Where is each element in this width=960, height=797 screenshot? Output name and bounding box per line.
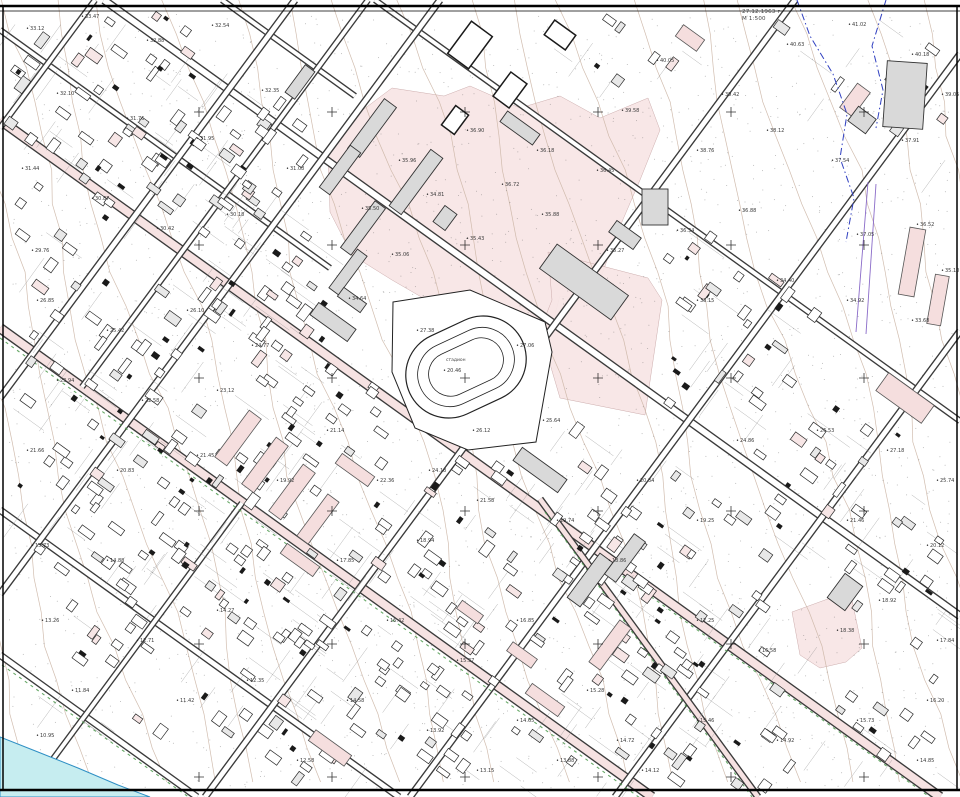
map-dot bbox=[73, 156, 74, 157]
parcel-fence bbox=[558, 763, 568, 776]
map-dot bbox=[624, 160, 625, 161]
map-dot bbox=[556, 195, 557, 196]
map-dot bbox=[112, 712, 113, 713]
house bbox=[511, 727, 520, 735]
map-dot bbox=[224, 315, 225, 316]
map-dot bbox=[607, 63, 608, 64]
map-dot bbox=[835, 401, 836, 402]
map-dot bbox=[770, 520, 771, 521]
map-dot bbox=[948, 701, 949, 702]
apartment-row bbox=[335, 453, 374, 486]
elevation-label: 14.58 bbox=[350, 698, 364, 704]
map-dot bbox=[938, 137, 939, 138]
map-dot bbox=[631, 349, 632, 350]
elevation-point bbox=[609, 560, 610, 561]
map-dot bbox=[138, 31, 139, 32]
map-dot bbox=[383, 501, 384, 502]
map-dot bbox=[720, 222, 721, 223]
map-dot bbox=[756, 81, 757, 82]
map-dot bbox=[520, 114, 521, 115]
map-dot bbox=[468, 622, 469, 623]
house bbox=[78, 131, 94, 145]
map-dot bbox=[935, 104, 936, 105]
map-dot bbox=[755, 776, 756, 777]
map-dot bbox=[899, 32, 900, 33]
map-dot bbox=[639, 72, 640, 73]
map-dot bbox=[214, 65, 215, 66]
map-dot bbox=[40, 558, 41, 559]
map-dot bbox=[824, 744, 825, 745]
map-dot bbox=[782, 389, 783, 390]
map-dot bbox=[77, 616, 78, 617]
map-dot bbox=[72, 567, 73, 568]
elevation-label: 18.92 bbox=[882, 598, 896, 604]
map-dot bbox=[454, 146, 455, 147]
house bbox=[765, 505, 781, 520]
map-dot bbox=[903, 690, 904, 691]
map-dot bbox=[884, 128, 885, 129]
map-dot bbox=[26, 546, 27, 547]
parcel-fence bbox=[561, 693, 582, 708]
elevation-point bbox=[32, 250, 33, 251]
map-dot bbox=[728, 27, 729, 28]
map-dot bbox=[569, 198, 570, 199]
map-dot bbox=[890, 17, 891, 18]
map-dot bbox=[588, 609, 589, 610]
shed bbox=[264, 579, 271, 586]
elevation-label: 35.43 bbox=[470, 236, 484, 242]
shed bbox=[398, 734, 406, 741]
map-dot bbox=[451, 659, 452, 660]
survey-annotation-line1: 27.12.1963 г. bbox=[742, 9, 842, 16]
map-dot bbox=[250, 42, 251, 43]
elevation-label: 22.58 bbox=[145, 398, 159, 404]
map-dot bbox=[96, 335, 97, 336]
map-dot bbox=[461, 144, 462, 145]
map-dot bbox=[92, 146, 93, 147]
map-dot bbox=[539, 728, 540, 729]
map-dot bbox=[233, 748, 234, 749]
parcel-fence bbox=[554, 49, 572, 62]
map-dot bbox=[862, 687, 863, 688]
map-dot bbox=[584, 444, 585, 445]
shed bbox=[112, 84, 120, 91]
map-dot bbox=[307, 573, 308, 574]
house bbox=[257, 546, 271, 560]
map-dot bbox=[698, 550, 699, 551]
map-dot bbox=[923, 522, 924, 523]
map-dot bbox=[424, 723, 425, 724]
parcel-fence bbox=[327, 668, 343, 680]
map-dot bbox=[907, 616, 908, 617]
map-dot bbox=[808, 355, 809, 356]
map-dot bbox=[907, 458, 908, 459]
map-dot bbox=[199, 50, 200, 51]
map-dot bbox=[220, 362, 221, 363]
map-dot bbox=[412, 294, 413, 295]
map-dot bbox=[195, 243, 196, 244]
map-dot bbox=[148, 446, 149, 447]
map-dot bbox=[334, 403, 335, 404]
map-dot bbox=[580, 116, 581, 117]
map-dot bbox=[50, 439, 51, 440]
map-dot bbox=[812, 735, 813, 736]
map-dot bbox=[841, 311, 842, 312]
map-dot bbox=[361, 66, 362, 67]
house bbox=[361, 625, 372, 636]
elevation-label: 14.12 bbox=[645, 768, 659, 774]
map-dot bbox=[594, 718, 595, 719]
map-dot bbox=[643, 406, 644, 407]
map-dot bbox=[481, 751, 482, 752]
map-dot bbox=[204, 675, 205, 676]
map-dot bbox=[557, 641, 558, 642]
map-dot bbox=[671, 42, 672, 43]
map-dot bbox=[932, 356, 933, 357]
map-dot bbox=[621, 457, 622, 458]
map-dot bbox=[381, 369, 382, 370]
map-dot bbox=[727, 741, 728, 742]
map-dot bbox=[33, 724, 34, 725]
map-dot bbox=[581, 243, 582, 244]
map-dot bbox=[659, 452, 660, 453]
map-dot bbox=[144, 571, 145, 572]
map-dot bbox=[418, 477, 419, 478]
elevation-point bbox=[429, 470, 430, 471]
map-dot bbox=[789, 329, 790, 330]
map-dot bbox=[261, 137, 262, 138]
map-dot bbox=[864, 397, 865, 398]
map-dot bbox=[355, 676, 356, 677]
house bbox=[370, 407, 381, 417]
map-dot bbox=[722, 733, 723, 734]
map-dot bbox=[101, 543, 102, 544]
map-dot bbox=[319, 655, 320, 656]
map-dot bbox=[896, 652, 897, 653]
map-dot bbox=[773, 713, 774, 714]
map-dot bbox=[718, 590, 719, 591]
map-dot bbox=[233, 103, 234, 104]
map-dot bbox=[638, 225, 639, 226]
map-dot bbox=[712, 771, 713, 772]
elevation-label: 40.18 bbox=[915, 52, 929, 58]
elevation-label: 17.85 bbox=[340, 558, 354, 564]
map-dot bbox=[591, 114, 592, 115]
elevation-label: 30.18 bbox=[230, 212, 244, 218]
map-dot bbox=[933, 490, 934, 491]
map-dot bbox=[891, 20, 892, 21]
map-dot bbox=[858, 651, 859, 652]
map-dot bbox=[336, 473, 337, 474]
map-dot bbox=[723, 258, 724, 259]
map-dot bbox=[287, 584, 288, 585]
map-dot bbox=[775, 411, 776, 412]
map-dot bbox=[202, 160, 203, 161]
house bbox=[736, 511, 752, 526]
parcel-fence bbox=[295, 590, 324, 611]
map-dot bbox=[61, 468, 62, 469]
map-dot bbox=[876, 578, 877, 579]
map-dot bbox=[133, 712, 134, 713]
map-dot bbox=[741, 329, 742, 330]
map-dot bbox=[817, 151, 818, 152]
map-dot bbox=[411, 461, 412, 462]
map-dot bbox=[909, 50, 910, 51]
map-dot bbox=[368, 675, 369, 676]
map-dot bbox=[858, 212, 859, 213]
map-dot bbox=[741, 340, 742, 341]
map-dot bbox=[111, 190, 112, 191]
map-dot bbox=[522, 240, 523, 241]
map-dot bbox=[44, 383, 45, 384]
map-dot bbox=[258, 166, 259, 167]
map-dot bbox=[856, 399, 857, 400]
map-dot bbox=[601, 333, 602, 334]
map-dot bbox=[303, 491, 304, 492]
map-dot bbox=[290, 691, 291, 692]
map-dot bbox=[308, 213, 309, 214]
building bbox=[642, 189, 668, 225]
map-dot bbox=[97, 621, 98, 622]
map-dot bbox=[497, 701, 498, 702]
map-dot bbox=[373, 693, 374, 694]
map-dot bbox=[121, 392, 122, 393]
map-dot bbox=[794, 675, 795, 676]
map-dot bbox=[643, 572, 644, 573]
map-dot bbox=[765, 533, 766, 534]
house bbox=[282, 262, 293, 273]
house bbox=[775, 494, 787, 505]
map-dot bbox=[898, 427, 899, 428]
elevation-point bbox=[642, 770, 643, 771]
map-dot bbox=[689, 451, 690, 452]
map-dot bbox=[81, 681, 82, 682]
elevation-label: 35.96 bbox=[402, 158, 416, 164]
map-dot bbox=[798, 328, 799, 329]
map-dot bbox=[825, 785, 826, 786]
map-dot bbox=[854, 655, 855, 656]
map-dot bbox=[935, 244, 936, 245]
parcel-fence bbox=[410, 596, 442, 619]
map-dot bbox=[699, 417, 700, 418]
house bbox=[244, 617, 257, 629]
map-dot bbox=[728, 455, 729, 456]
map-dot bbox=[523, 114, 524, 115]
map-dot bbox=[939, 577, 940, 578]
elevation-label: 24.86 bbox=[740, 438, 754, 444]
map-dot bbox=[636, 120, 637, 121]
map-dot bbox=[9, 525, 10, 526]
map-dot bbox=[112, 261, 113, 262]
elevation-label: 20.83 bbox=[120, 468, 134, 474]
map-dot bbox=[406, 429, 407, 430]
elevation-point bbox=[42, 620, 43, 621]
map-dot bbox=[173, 289, 174, 290]
house bbox=[431, 713, 448, 729]
map-dot bbox=[15, 462, 16, 463]
map-dot bbox=[81, 728, 82, 729]
map-dot bbox=[949, 614, 950, 615]
map-dot bbox=[550, 552, 551, 553]
elevation-point bbox=[537, 150, 538, 151]
house bbox=[921, 731, 935, 744]
shed bbox=[620, 589, 627, 595]
map-dot bbox=[59, 148, 60, 149]
house bbox=[424, 550, 442, 566]
elevation-point bbox=[399, 160, 400, 161]
map-dot bbox=[601, 59, 602, 60]
map-dot bbox=[60, 83, 61, 84]
apartment-row bbox=[242, 437, 289, 493]
map-dot bbox=[574, 636, 575, 637]
map-dot bbox=[598, 384, 599, 385]
elevation-label: 21.66 bbox=[30, 448, 44, 454]
map-dot bbox=[916, 575, 917, 576]
map-dot bbox=[650, 116, 651, 117]
map-dot bbox=[663, 126, 664, 127]
house bbox=[146, 54, 157, 65]
map-dot bbox=[351, 70, 352, 71]
map-dot bbox=[312, 261, 313, 262]
map-dot bbox=[162, 585, 163, 586]
parcel-fence bbox=[49, 388, 63, 407]
house bbox=[104, 17, 115, 27]
map-dot bbox=[243, 38, 244, 39]
map-dot bbox=[620, 283, 621, 284]
elevation-point bbox=[467, 130, 468, 131]
parcel-fence bbox=[516, 758, 536, 773]
map-dot bbox=[79, 275, 80, 276]
map-dot bbox=[233, 341, 234, 342]
map-dot bbox=[665, 635, 666, 636]
map-dot bbox=[591, 145, 592, 146]
map-dot bbox=[231, 589, 232, 590]
map-dot bbox=[79, 222, 80, 223]
map-dot bbox=[165, 498, 166, 499]
map-dot bbox=[164, 89, 165, 90]
map-dot bbox=[476, 549, 477, 550]
map-dot bbox=[273, 502, 274, 503]
map-dot bbox=[341, 778, 342, 779]
elevation-point bbox=[349, 298, 350, 299]
map-dot bbox=[283, 144, 284, 145]
map-dot bbox=[667, 577, 668, 578]
map-dot bbox=[89, 340, 90, 341]
map-dot bbox=[583, 459, 584, 460]
map-dot bbox=[756, 656, 757, 657]
map-dot bbox=[458, 565, 459, 566]
map-dot bbox=[89, 119, 90, 120]
map-dot bbox=[563, 298, 564, 299]
map-dot bbox=[794, 717, 795, 718]
elevation-point bbox=[817, 430, 818, 431]
map-dot bbox=[230, 569, 231, 570]
map-dot bbox=[759, 624, 760, 625]
map-dot bbox=[346, 514, 347, 515]
elevation-point bbox=[444, 370, 445, 371]
map-dot bbox=[320, 589, 321, 590]
map-dot bbox=[730, 427, 731, 428]
map-dot bbox=[128, 647, 129, 648]
map-dot bbox=[909, 163, 910, 164]
map-dot bbox=[658, 507, 659, 508]
map-dot bbox=[740, 541, 741, 542]
map-dot bbox=[711, 127, 712, 128]
elevation-point bbox=[737, 440, 738, 441]
map-dot bbox=[681, 196, 682, 197]
map-dot bbox=[768, 632, 769, 633]
map-dot bbox=[862, 376, 863, 377]
map-dot bbox=[899, 669, 900, 670]
elevation-point bbox=[912, 320, 913, 321]
map-dot bbox=[690, 17, 691, 18]
map-dot bbox=[858, 316, 859, 317]
map-dot bbox=[839, 411, 840, 412]
map-dot bbox=[578, 99, 579, 100]
map-dot bbox=[196, 742, 197, 743]
map-dot bbox=[301, 114, 302, 115]
map-dot bbox=[483, 562, 484, 563]
map-dot bbox=[777, 476, 778, 477]
elevation-point bbox=[107, 330, 108, 331]
map-dot bbox=[170, 293, 171, 294]
parcel-fence bbox=[301, 367, 324, 384]
map-dot bbox=[288, 590, 289, 591]
map-dot bbox=[493, 200, 494, 201]
map-dot bbox=[686, 209, 687, 210]
map-dot bbox=[448, 86, 449, 87]
map-dot bbox=[418, 68, 419, 69]
elevation-label: 10.95 bbox=[40, 733, 54, 739]
map-dot bbox=[505, 242, 506, 243]
map-dot bbox=[308, 584, 309, 585]
map-dot bbox=[451, 69, 452, 70]
elevation-point bbox=[777, 280, 778, 281]
map-dot bbox=[542, 782, 543, 783]
map-dot bbox=[13, 284, 14, 285]
map-dot bbox=[809, 552, 810, 553]
elevation-label: 15.37 bbox=[460, 658, 474, 664]
map-dot bbox=[767, 439, 768, 440]
map-dot bbox=[797, 149, 798, 150]
map-dot bbox=[681, 491, 682, 492]
map-dot bbox=[714, 31, 715, 32]
elevation-point bbox=[879, 600, 880, 601]
map-dot bbox=[436, 180, 437, 181]
map-dot bbox=[557, 96, 558, 97]
map-dot bbox=[506, 500, 507, 501]
map-dot bbox=[903, 191, 904, 192]
map-dot bbox=[166, 182, 167, 183]
grid-cross bbox=[859, 240, 869, 250]
map-dot bbox=[908, 318, 909, 319]
map-dot bbox=[415, 72, 416, 73]
map-dot bbox=[752, 107, 753, 108]
map-dot bbox=[437, 108, 438, 109]
house bbox=[239, 708, 252, 721]
map-dot bbox=[47, 663, 48, 664]
shed bbox=[283, 596, 291, 603]
map-dot bbox=[318, 131, 319, 132]
elevation-label: 16.85 bbox=[520, 618, 534, 624]
map-dot bbox=[596, 220, 597, 221]
map-dot bbox=[208, 143, 209, 144]
map-dot bbox=[344, 737, 345, 738]
map-dot bbox=[792, 86, 793, 87]
map-dot bbox=[196, 673, 197, 674]
map-dot bbox=[90, 735, 91, 736]
map-dot bbox=[298, 201, 299, 202]
